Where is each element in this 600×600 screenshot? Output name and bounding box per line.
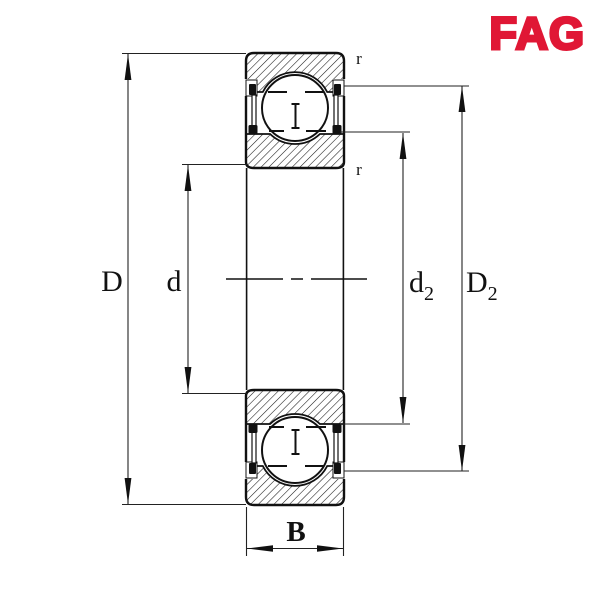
arrow-B-right	[317, 545, 343, 551]
label-D2-base: D	[466, 266, 488, 299]
arrow-D-top	[125, 54, 132, 80]
arrow-d2-bottom	[400, 397, 407, 423]
label-d2-base: d	[409, 266, 424, 299]
arrow-D2-top	[459, 86, 466, 112]
label-D2: D2	[466, 266, 498, 305]
bearing-bottom-section	[245, 390, 346, 505]
arrow-d-top	[185, 165, 192, 191]
arrow-B-left	[247, 545, 273, 551]
label-d2: d2	[409, 266, 434, 305]
label-D2-subscript: 2	[488, 283, 498, 305]
bearing-drawing-page: D d d2 D2 B r r FAG	[0, 0, 600, 600]
arrow-d-bottom	[185, 367, 192, 393]
fag-logo: FAG	[489, 8, 585, 59]
arrow-d2-top	[400, 133, 407, 159]
dimension-d2	[340, 132, 410, 424]
label-d: d	[167, 265, 182, 298]
label-B: B	[286, 516, 305, 548]
label-r-top: r	[356, 49, 362, 68]
label-d2-subscript: 2	[424, 283, 434, 305]
label-D: D	[101, 265, 123, 298]
bearing-diagram: D d d2 D2 B r r FAG	[0, 0, 600, 600]
bearing-top-section	[245, 53, 346, 168]
arrow-D2-bottom	[459, 445, 466, 471]
arrow-D-bottom	[125, 478, 132, 504]
label-r-bottom: r	[356, 160, 362, 179]
